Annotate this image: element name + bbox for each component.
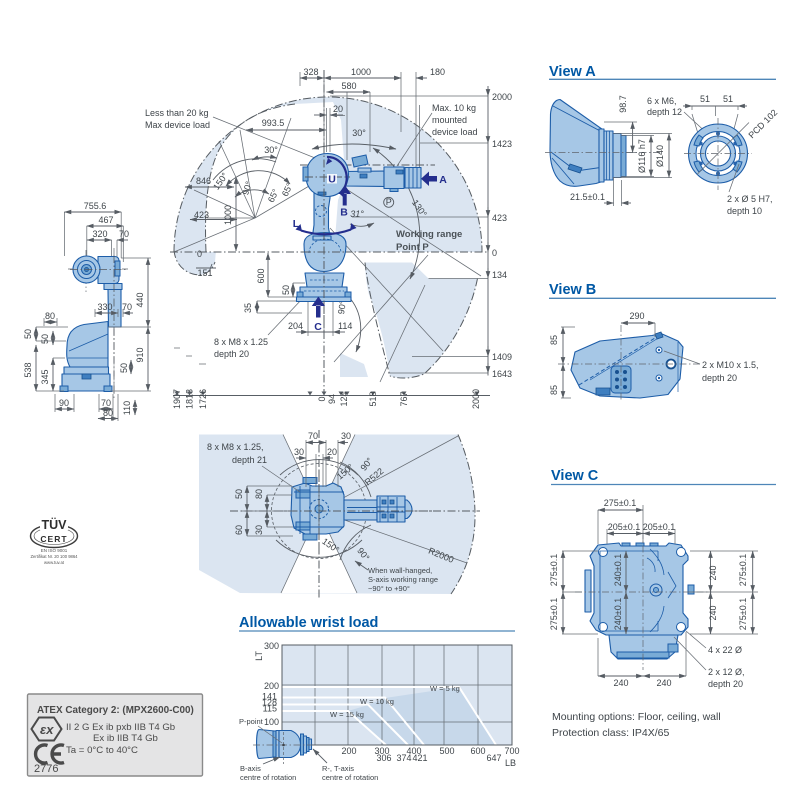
svg-text:A: A (439, 174, 447, 186)
svg-text:W = 10 kg: W = 10 kg (360, 697, 394, 706)
svg-text:mounted: mounted (432, 115, 467, 125)
svg-text:200: 200 (264, 681, 279, 691)
svg-text:2776: 2776 (34, 763, 58, 775)
svg-text:70: 70 (122, 302, 132, 312)
svg-text:Protection class: IP4X/65: Protection class: IP4X/65 (552, 727, 669, 739)
svg-text:275±0.1: 275±0.1 (738, 598, 748, 630)
svg-text:275±0.1: 275±0.1 (604, 498, 636, 508)
svg-text:767: 767 (399, 391, 409, 406)
svg-text:345: 345 (40, 369, 50, 384)
svg-text:124: 124 (339, 391, 349, 406)
svg-text:1000: 1000 (351, 67, 371, 77)
svg-text:4 x 22 Ø: 4 x 22 Ø (708, 645, 742, 655)
svg-text:328: 328 (303, 67, 318, 77)
svg-text:204: 204 (288, 321, 303, 331)
svg-text:30: 30 (294, 447, 304, 457)
svg-text:Less than 20 kg: Less than 20 kg (145, 108, 209, 118)
svg-text:Max device load: Max device load (145, 120, 210, 130)
svg-text:80: 80 (45, 311, 55, 321)
svg-text:depth 20: depth 20 (708, 679, 743, 689)
svg-text:240±0.1: 240±0.1 (613, 554, 623, 586)
svg-text:180: 180 (430, 67, 445, 77)
svg-text:440: 440 (135, 292, 145, 307)
svg-text:Mounting options: Floor, ceili: Mounting options: Floor, ceiling, wall (552, 711, 721, 723)
svg-text:110: 110 (122, 401, 132, 415)
svg-text:20: 20 (333, 104, 343, 114)
svg-text:Ex ib IIB T4 Gb: Ex ib IIB T4 Gb (93, 733, 158, 744)
svg-text:600: 600 (470, 746, 485, 756)
svg-text:−90° to +90°: −90° to +90° (368, 584, 410, 593)
svg-text:LB: LB (505, 758, 516, 768)
svg-text:depth 20: depth 20 (214, 349, 249, 359)
svg-text:600: 600 (256, 268, 266, 283)
svg-text:421: 421 (412, 753, 427, 763)
svg-text:240: 240 (656, 678, 671, 688)
svg-text:300: 300 (264, 641, 279, 651)
svg-text:240±0.1: 240±0.1 (613, 598, 623, 630)
svg-text:Ø140: Ø140 (655, 145, 665, 167)
svg-text:290: 290 (629, 311, 644, 321)
svg-text:205±0.1: 205±0.1 (608, 522, 640, 532)
svg-text:Point P: Point P (396, 242, 429, 253)
svg-text:30: 30 (341, 431, 351, 441)
svg-text:depth 21: depth 21 (232, 455, 267, 465)
svg-text:467: 467 (98, 215, 113, 225)
svg-text:50: 50 (119, 363, 129, 373)
svg-text:205±0.1: 205±0.1 (643, 522, 675, 532)
svg-text:Ø116 h7: Ø116 h7 (637, 139, 647, 173)
svg-text:depth 10: depth 10 (727, 206, 762, 216)
svg-text:W = 5 kg: W = 5 kg (430, 684, 460, 693)
svg-text:Max. 10 kg: Max. 10 kg (432, 103, 476, 113)
svg-text:2000: 2000 (471, 389, 481, 409)
svg-text:2 x Ø 5 H7,: 2 x Ø 5 H7, (727, 194, 773, 204)
svg-text:50: 50 (40, 334, 50, 344)
svg-text:1907: 1907 (172, 389, 182, 409)
svg-text:depth 20: depth 20 (702, 373, 737, 383)
svg-text:846: 846 (196, 176, 211, 186)
svg-text:P: P (386, 197, 392, 207)
svg-text:98.7: 98.7 (618, 95, 628, 113)
svg-text:374: 374 (396, 753, 411, 763)
svg-text:90: 90 (59, 398, 69, 408)
svg-text:centre of rotation: centre of rotation (322, 773, 378, 782)
svg-text:647: 647 (486, 753, 501, 763)
svg-text:2 x 12 Ø,: 2 x 12 Ø, (708, 667, 745, 677)
svg-text:21.5±0.1: 21.5±0.1 (570, 192, 605, 202)
svg-text:31°: 31° (350, 209, 364, 219)
svg-text:100: 100 (264, 717, 279, 727)
svg-text:C: C (314, 321, 322, 333)
svg-text:6 x M6,: 6 x M6, (647, 96, 677, 106)
svg-text:60: 60 (234, 525, 244, 535)
svg-text:www.tuv.at: www.tuv.at (44, 560, 65, 565)
svg-text:Ta = 0°C to 40°C: Ta = 0°C to 40°C (66, 745, 138, 756)
svg-text:1726: 1726 (198, 389, 208, 409)
svg-text:85: 85 (549, 335, 559, 345)
svg-text:device load: device load (432, 127, 478, 137)
svg-text:330: 330 (97, 302, 112, 312)
svg-text:35: 35 (243, 303, 253, 313)
svg-text:0: 0 (317, 396, 327, 401)
svg-text:580: 580 (341, 81, 356, 91)
svg-text:2000: 2000 (492, 92, 512, 102)
svg-text:Zertifikat Nr. 20 100 9864: Zertifikat Nr. 20 100 9864 (30, 554, 78, 559)
svg-text:993.5: 993.5 (262, 118, 285, 128)
svg-text:B-axis: B-axis (240, 764, 261, 773)
svg-text:When wall-hanged,: When wall-hanged, (368, 566, 432, 575)
svg-text:B: B (340, 207, 348, 219)
svg-text:423: 423 (194, 210, 209, 220)
svg-text:70: 70 (308, 431, 318, 441)
svg-text:1000: 1000 (223, 205, 233, 225)
svg-text:320: 320 (92, 229, 107, 239)
svg-text:8 x M8 x 1.25,: 8 x M8 x 1.25, (207, 442, 264, 452)
svg-text:0: 0 (492, 248, 497, 258)
svg-text:LT: LT (254, 651, 264, 661)
svg-text:εx: εx (40, 722, 54, 737)
svg-text:538: 538 (23, 362, 33, 377)
svg-text:1409: 1409 (492, 352, 512, 362)
svg-text:240: 240 (708, 605, 718, 620)
svg-text:30°: 30° (352, 128, 366, 138)
svg-text:423: 423 (492, 213, 507, 223)
svg-text:P-point: P-point (239, 717, 264, 726)
svg-text:View A: View A (549, 64, 596, 80)
svg-text:1423: 1423 (492, 139, 512, 149)
svg-text:8 x M8 x 1.25: 8 x M8 x 1.25 (214, 337, 268, 347)
svg-text:Working range: Working range (396, 229, 462, 240)
svg-text:80: 80 (254, 489, 264, 499)
svg-text:51: 51 (723, 94, 733, 104)
svg-text:1643: 1643 (492, 369, 512, 379)
svg-text:70: 70 (101, 398, 111, 408)
svg-text:2 x M10 x 1.5,: 2 x M10 x 1.5, (702, 360, 759, 370)
svg-text:500: 500 (439, 746, 454, 756)
svg-text:TÜV: TÜV (42, 517, 68, 532)
svg-text:240: 240 (613, 678, 628, 688)
svg-text:depth 12: depth 12 (647, 107, 682, 117)
svg-text:30: 30 (254, 525, 264, 535)
svg-text:CERT: CERT (40, 534, 67, 544)
svg-text:View B: View B (549, 282, 596, 298)
svg-text:20: 20 (327, 447, 337, 457)
svg-text:EN ISO 9001: EN ISO 9001 (41, 548, 68, 553)
svg-text:51: 51 (700, 94, 710, 104)
svg-text:30°: 30° (264, 145, 278, 155)
svg-text:50: 50 (281, 285, 291, 295)
svg-text:II 2 G Ex ib pxb IIB T4 Gb: II 2 G Ex ib pxb IIB T4 Gb (66, 722, 175, 733)
svg-text:306: 306 (376, 753, 391, 763)
svg-text:134: 134 (492, 270, 507, 280)
svg-text:275±0.1: 275±0.1 (549, 554, 559, 586)
svg-text:114: 114 (338, 321, 352, 331)
svg-text:W = 15 kg: W = 15 kg (330, 710, 364, 719)
svg-text:80: 80 (103, 408, 113, 418)
svg-text:700: 700 (504, 746, 519, 756)
svg-text:275±0.1: 275±0.1 (738, 554, 748, 586)
svg-text:70: 70 (119, 229, 129, 239)
svg-text:1813: 1813 (185, 389, 195, 409)
svg-text:755.6: 755.6 (84, 201, 107, 211)
svg-text:S-axis working range: S-axis working range (368, 575, 438, 584)
svg-text:centre of rotation: centre of rotation (240, 773, 296, 782)
svg-text:Allowable wrist load: Allowable wrist load (239, 615, 378, 631)
svg-text:200: 200 (341, 746, 356, 756)
svg-text:275±0.1: 275±0.1 (549, 598, 559, 630)
svg-text:518: 518 (368, 391, 378, 406)
svg-text:115: 115 (263, 704, 277, 714)
svg-text:PCD 102: PCD 102 (746, 107, 779, 140)
svg-text:94: 94 (327, 394, 337, 404)
svg-text:L: L (293, 218, 300, 230)
svg-text:R-, T-axis: R-, T-axis (322, 764, 354, 773)
svg-text:View C: View C (551, 468, 599, 484)
svg-text:85: 85 (549, 385, 559, 395)
svg-text:240: 240 (708, 565, 718, 580)
svg-text:U: U (328, 174, 336, 186)
svg-text:910: 910 (135, 347, 145, 362)
svg-text:50: 50 (23, 329, 33, 339)
svg-text:ATEX Category 2: (MPX2600-C00): ATEX Category 2: (MPX2600-C00) (37, 705, 194, 716)
svg-text:50: 50 (234, 489, 244, 499)
svg-text:0: 0 (197, 249, 202, 259)
